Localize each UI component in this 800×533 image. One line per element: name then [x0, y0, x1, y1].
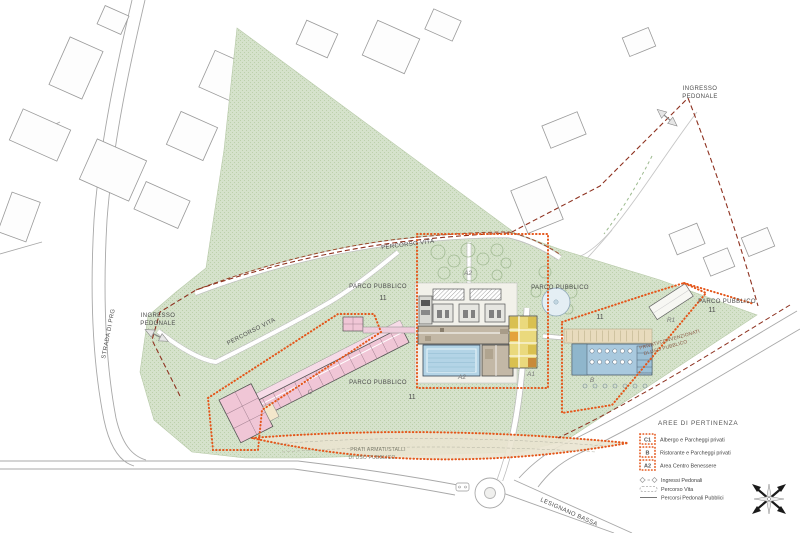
- legend: AREE DI PERTINENZA C1 Albergo e Parchegg…: [640, 420, 738, 502]
- legend-label-ingressi: Ingressi Pedonali: [661, 478, 702, 484]
- transit-stop-symbol: [456, 483, 469, 491]
- legend-row-percorsi-pubblici: Percorsi Pedonali Pubblici: [640, 496, 724, 502]
- property-boundary-east: [688, 98, 758, 306]
- footbridge: [363, 327, 421, 333]
- label-prati-2: DI USO PUBBLICO: [349, 455, 396, 461]
- legend-row-c1: C1 Albergo e Parcheggi privati: [640, 434, 725, 444]
- legend-code-a2: A2: [644, 464, 651, 470]
- legend-title: AREE DI PERTINENZA: [658, 420, 738, 427]
- legend-row-percorso-vita: Percorso Vita: [640, 487, 693, 494]
- legend-code-c1: C1: [644, 438, 651, 444]
- label-parcel-11-1: 11: [379, 295, 386, 302]
- label-parcel-11-4: 11: [408, 394, 415, 401]
- legend-label-c1: Albergo e Parcheggi privati: [660, 438, 725, 444]
- label-building-r1: R1: [667, 317, 676, 324]
- legend-label-b: Ristorante e Parcheggi privati: [660, 451, 731, 457]
- legend-label-percorsi-pubblici: Percorsi Pedonali Pubblici: [661, 496, 724, 502]
- site-plan-page: PARCO PUBBLICO 11 PARCO PUBBLICO 11 PARC…: [0, 0, 800, 533]
- fountain: [542, 288, 570, 316]
- label-building-a1: A1: [526, 371, 535, 378]
- legend-row-b: B Ristorante e Parcheggi privati: [640, 447, 731, 457]
- legend-label-a2: Area Centro Benessere: [660, 464, 716, 470]
- label-parco-pubblico-1: PARCO PUBBLICO: [349, 284, 407, 290]
- legend-code-b: B: [646, 451, 650, 457]
- percorso-vita-symbol: [640, 487, 657, 492]
- label-ingresso-top-2: PEDONALE: [682, 94, 717, 100]
- label-parcel-11-2: 11: [596, 314, 603, 321]
- label-parcel-11-3: 11: [708, 307, 715, 314]
- label-parco-pubblico-3: PARCO PUBBLICO: [698, 299, 756, 305]
- label-building-a2-top: A2: [463, 270, 472, 277]
- label-parco-pubblico-2: PARCO PUBBLICO: [531, 285, 589, 291]
- main-slab: [418, 326, 513, 344]
- legend-row-a2: A2 Area Centro Benessere: [640, 460, 716, 470]
- label-building-a2-bottom: A2: [457, 374, 466, 381]
- entrance-arrow-top: [655, 106, 680, 129]
- legend-label-percorso-vita: Percorso Vita: [661, 487, 693, 493]
- label-ingresso-top-1: INGRESSO: [683, 86, 717, 92]
- label-building-c: C: [308, 389, 313, 396]
- label-strada-di-prg: STRADA DI PRG: [101, 308, 117, 359]
- legend-row-ingressi: Ingressi Pedonali: [640, 478, 702, 485]
- wellness-complex-a2: [415, 283, 517, 383]
- label-prati-1: PRATI ARMATI/STALLI: [350, 447, 405, 453]
- footpath-dashes: [604, 156, 652, 234]
- label-ingresso-left-1: INGRESSO: [141, 313, 175, 319]
- site-plan: PARCO PUBBLICO 11 PARCO PUBBLICO 11 PARC…: [0, 0, 800, 533]
- label-building-b: B: [590, 377, 595, 384]
- compass-rose: [752, 484, 786, 514]
- label-lesignano-bassa: LESIGNANO BASSA: [539, 497, 598, 528]
- services-building-a1: [509, 316, 537, 368]
- label-ingresso-left-2: PEDONALE: [140, 321, 175, 327]
- label-parco-pubblico-4: PARCO PUBBLICO: [349, 380, 407, 386]
